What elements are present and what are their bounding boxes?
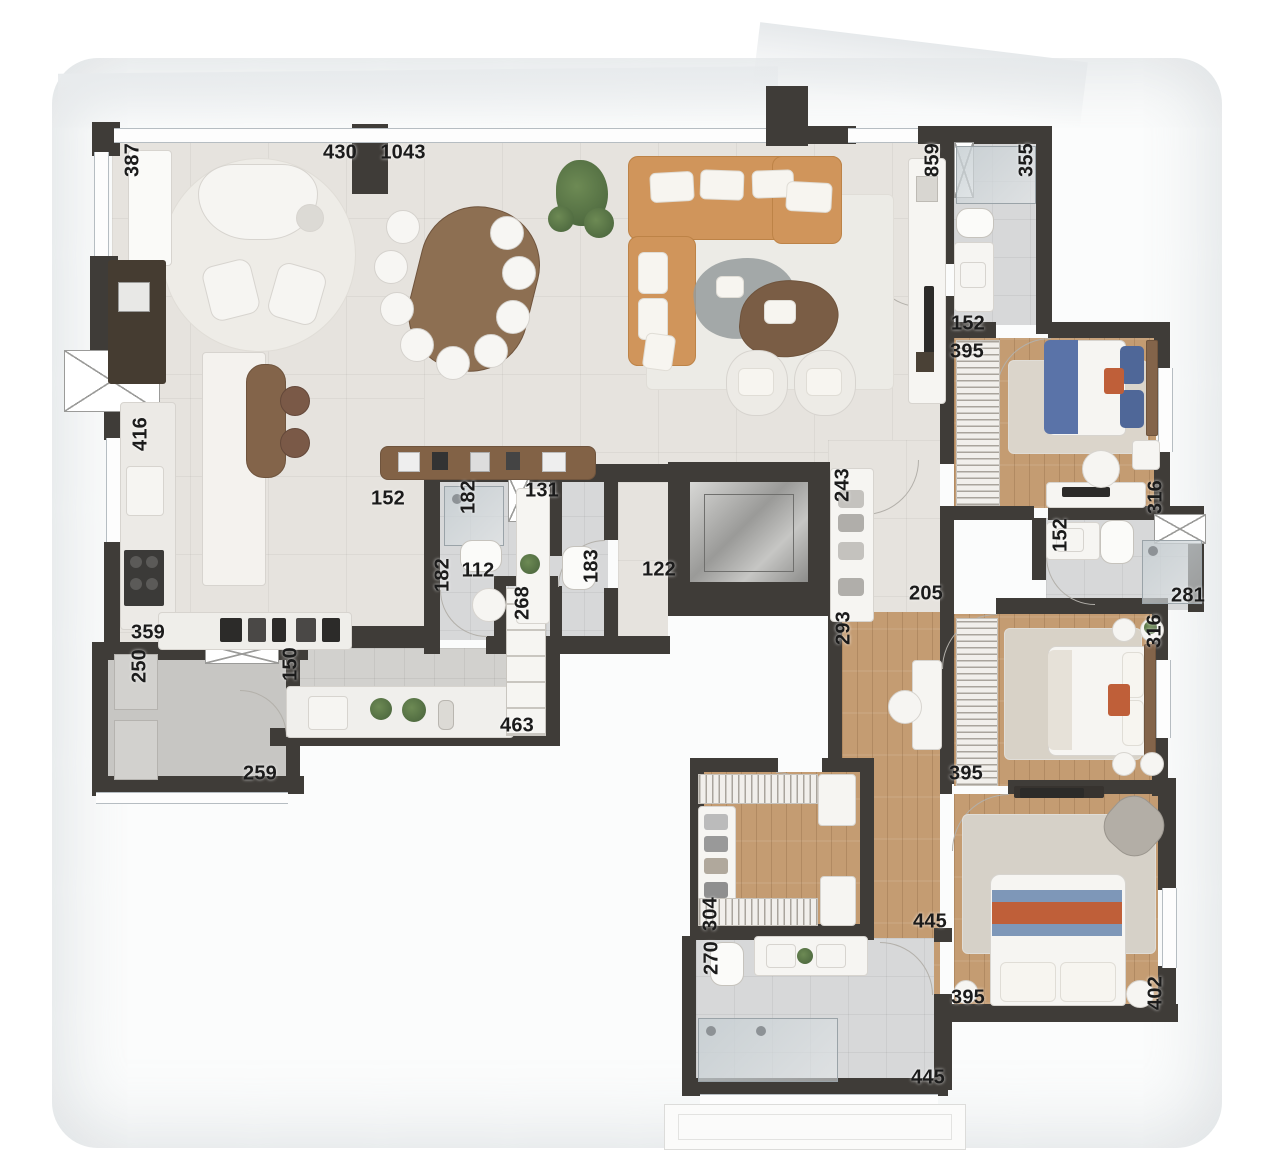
- dimension-label: 445: [913, 911, 947, 934]
- dimension-label: 395: [949, 763, 983, 786]
- dimension-label: 205: [909, 583, 943, 606]
- dimension-label: 359: [131, 622, 165, 645]
- dimension-label: 122: [642, 559, 676, 582]
- dimension-label: 395: [951, 987, 985, 1010]
- dimension-label: 316: [1145, 480, 1168, 514]
- dimension-label: 150: [280, 647, 303, 681]
- dimension-label: 152: [371, 488, 405, 511]
- dimension-label: 430: [323, 142, 357, 165]
- dimension-label: 304: [700, 897, 723, 931]
- dimension-label: 387: [122, 143, 145, 177]
- dimension-label: 268: [512, 586, 535, 620]
- dimension-label: 182: [432, 558, 455, 592]
- dimension-label: 445: [911, 1067, 945, 1090]
- dimension-label: 316: [1144, 614, 1167, 648]
- dimension-label: 250: [129, 649, 152, 683]
- dimension-label: 281: [1171, 585, 1205, 608]
- floor-plan: 3874301043859355152395316152281416152182…: [0, 0, 1280, 1173]
- dimension-label: 183: [581, 549, 604, 583]
- dimension-label: 395: [950, 341, 984, 364]
- dimension-label: 416: [130, 417, 153, 451]
- dimension-label: 463: [500, 715, 534, 738]
- dimension-label: 402: [1145, 976, 1168, 1010]
- dimension-label: 1043: [380, 142, 425, 165]
- dimension-label: 293: [833, 611, 856, 645]
- dimension-label: 112: [462, 560, 495, 583]
- dimension-label: 152: [1050, 518, 1073, 552]
- dimension-label: 270: [701, 941, 724, 975]
- dimension-label: 131: [525, 480, 559, 503]
- dimension-label: 859: [922, 143, 945, 177]
- dimension-label: 182: [458, 480, 481, 514]
- dimension-label: 152: [951, 313, 985, 336]
- dimension-label: 243: [832, 468, 855, 502]
- dimension-label: 259: [243, 763, 277, 786]
- dimension-label: 355: [1016, 143, 1039, 177]
- dimension-labels-layer: 3874301043859355152395316152281416152182…: [0, 0, 1280, 1173]
